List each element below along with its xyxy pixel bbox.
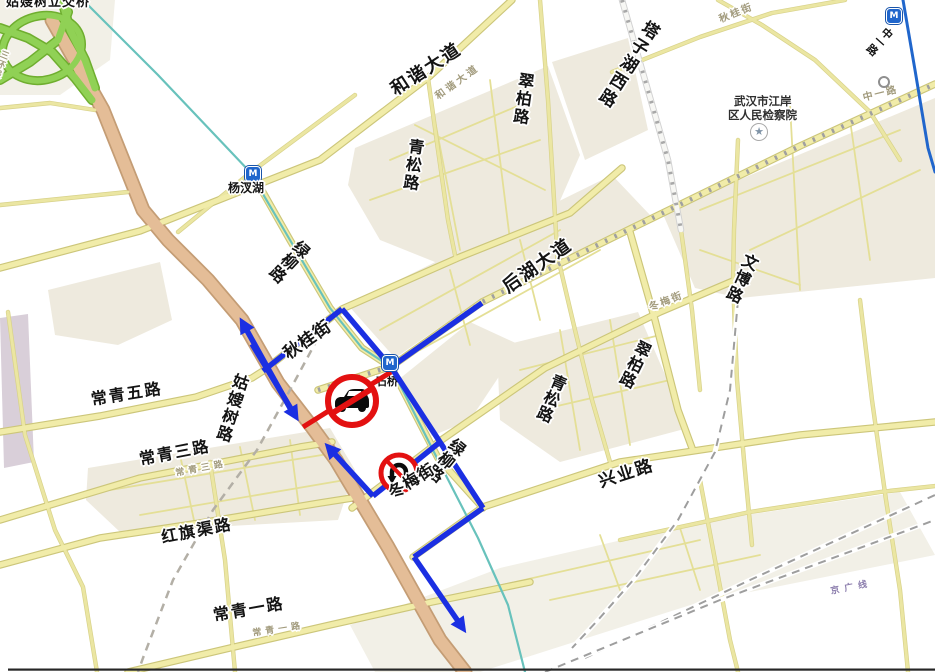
metro-station-icon[interactable]: M	[245, 166, 261, 182]
poi-star-icon[interactable]: ★	[750, 123, 768, 141]
metro-station-icon[interactable]: M	[886, 8, 902, 24]
road-label: 武汉市江岸	[734, 95, 792, 107]
map-root[interactable]: 石桥 姑嫂树立交桥三环线和谐大道和谐大道秋桂街塔子湖西路中一路中一路翠柏路青松路…	[0, 0, 935, 672]
metro-station-icon[interactable]: M	[382, 355, 398, 371]
map-canvas[interactable]: 石桥	[0, 0, 935, 672]
road-label: 区人民检察院	[728, 109, 797, 121]
metro-station-label: 杨汊湖	[228, 182, 264, 195]
poi-dot-icon[interactable]	[878, 76, 890, 88]
road-label: 姑嫂树立交桥	[6, 0, 90, 10]
